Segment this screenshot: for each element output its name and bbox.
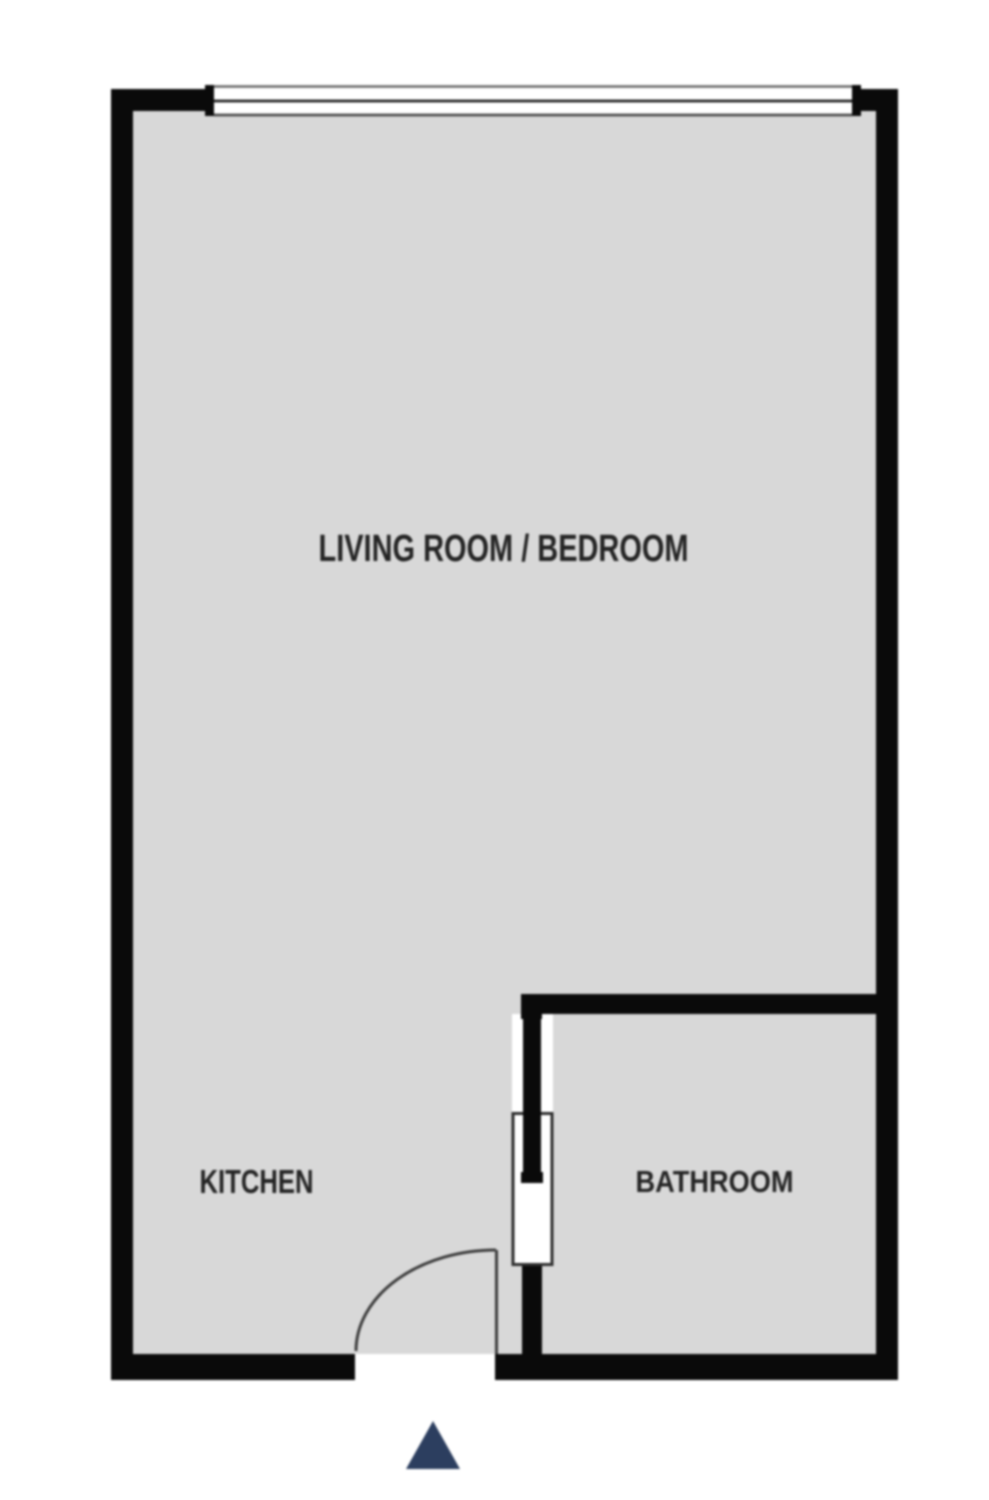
svg-text:BATHROOM: BATHROOM bbox=[636, 1164, 794, 1199]
svg-text:KITCHEN: KITCHEN bbox=[200, 1163, 314, 1200]
svg-text:LIVING ROOM / BEDROOM: LIVING ROOM / BEDROOM bbox=[319, 528, 689, 570]
